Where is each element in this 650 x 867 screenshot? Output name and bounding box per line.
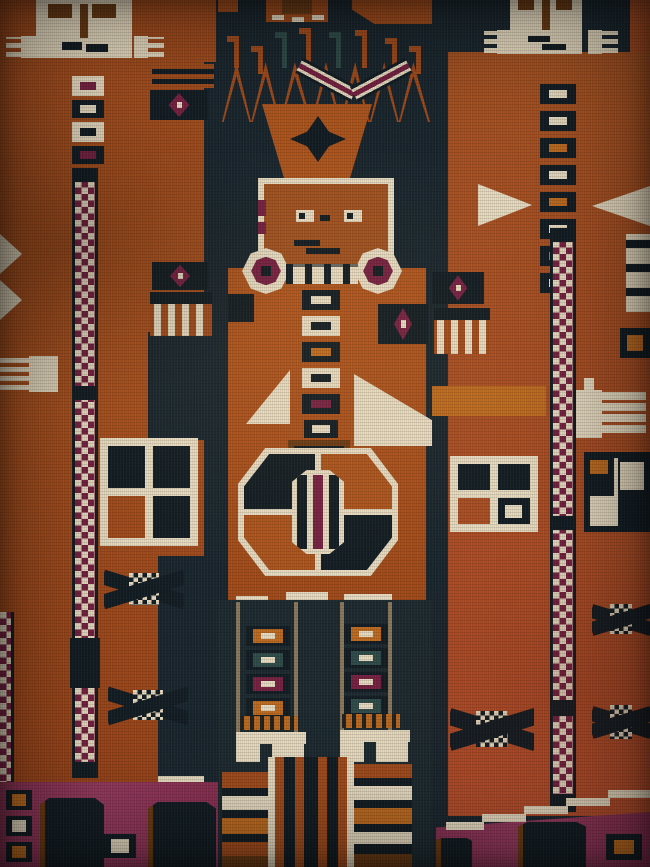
stepped-border-dash [524, 806, 568, 814]
mini-rosette [606, 834, 642, 860]
rug-photo [0, 0, 650, 867]
stepped-border-dash [446, 822, 484, 830]
stepped-border-dash [608, 790, 650, 798]
shrub-silhouette [436, 838, 472, 867]
bottom-right-band [0, 0, 650, 867]
shrub-silhouette [518, 822, 586, 867]
stepped-border-dash [482, 814, 526, 822]
stepped-border-dash [566, 798, 610, 806]
